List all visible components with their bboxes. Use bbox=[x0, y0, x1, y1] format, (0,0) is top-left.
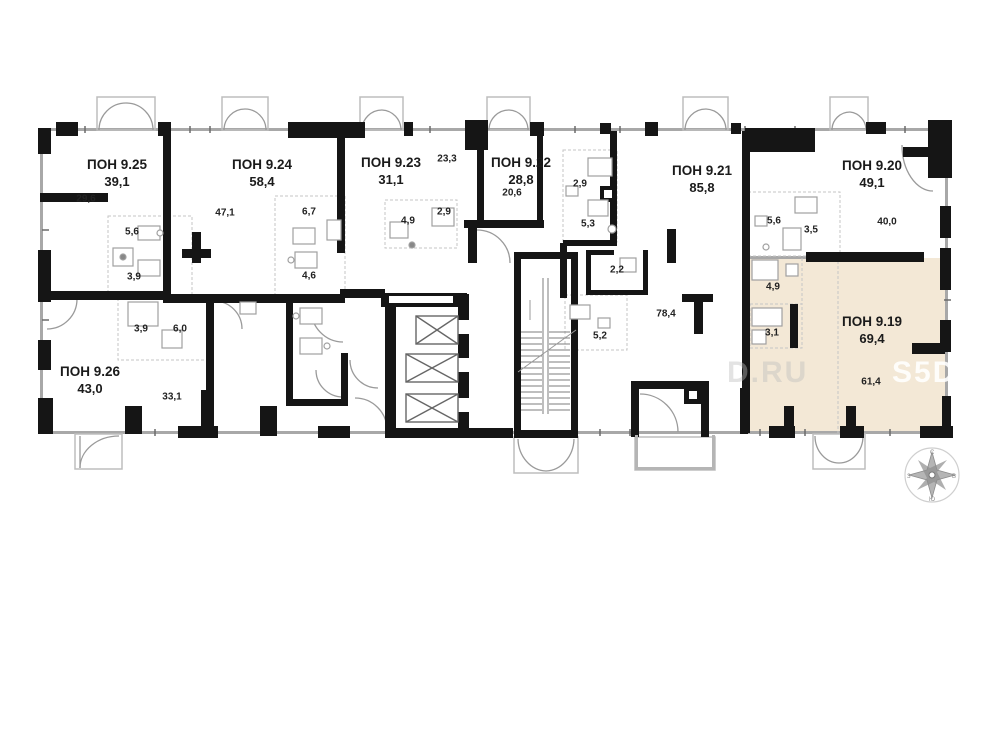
floorplan-drawing: С В Ю З bbox=[0, 0, 1000, 750]
area-label: 5,3 bbox=[581, 219, 595, 230]
area-label: 4,9 bbox=[766, 282, 780, 293]
room-label-9-21[interactable]: ПОН 9.21 85,8 bbox=[672, 162, 732, 196]
area-label: 6,0 bbox=[173, 324, 187, 335]
staircase bbox=[518, 278, 576, 414]
room-label-9-22[interactable]: ПОН 9.22 28,8 bbox=[491, 154, 551, 188]
area-label: 3,5 bbox=[804, 225, 818, 236]
area-label: 33,1 bbox=[162, 392, 181, 403]
area-label: 5,2 bbox=[593, 331, 607, 342]
watermark-fragment-right: S5D bbox=[892, 356, 956, 390]
room-name: ПОН 9.21 bbox=[672, 162, 732, 179]
room-name: ПОН 9.20 bbox=[842, 157, 902, 174]
room-name: ПОН 9.26 bbox=[60, 363, 120, 380]
room-area: 39,1 bbox=[87, 173, 147, 190]
area-label: 47,1 bbox=[215, 208, 234, 219]
area-label: 29,6 bbox=[76, 194, 95, 205]
area-label: 23,3 bbox=[437, 154, 456, 165]
room-label-9-23[interactable]: ПОН 9.23 31,1 bbox=[361, 154, 421, 188]
room-name: ПОН 9.23 bbox=[361, 154, 421, 171]
area-label: 6,7 bbox=[302, 207, 316, 218]
compass-north: С bbox=[930, 450, 935, 456]
compass-east: В bbox=[952, 474, 956, 480]
room-label-9-26[interactable]: ПОН 9.26 43,0 bbox=[60, 363, 120, 397]
area-label: 3,9 bbox=[127, 272, 141, 283]
room-name: ПОН 9.25 bbox=[87, 156, 147, 173]
area-label: 3,1 bbox=[765, 328, 779, 339]
vestibule-porch bbox=[635, 435, 715, 470]
compass-south: Ю bbox=[929, 497, 935, 503]
room-area: 28,8 bbox=[491, 171, 551, 188]
elevator-shafts bbox=[406, 316, 458, 422]
area-label: 3,9 bbox=[134, 324, 148, 335]
area-label: 4,6 bbox=[302, 271, 316, 282]
room-name: ПОН 9.19 bbox=[842, 313, 902, 330]
area-label: 2,9 bbox=[573, 179, 587, 190]
area-label: 2,2 bbox=[610, 265, 624, 276]
area-label: 5,6 bbox=[767, 216, 781, 227]
area-label: 5,6 bbox=[125, 227, 139, 238]
room-name: ПОН 9.24 bbox=[232, 156, 292, 173]
area-label: 2,9 bbox=[437, 207, 451, 218]
room-label-9-20[interactable]: ПОН 9.20 49,1 bbox=[842, 157, 902, 191]
area-label: 4,9 bbox=[401, 216, 415, 227]
area-label: 40,0 bbox=[877, 217, 896, 228]
room-label-9-19[interactable]: ПОН 9.19 69,4 bbox=[842, 313, 902, 347]
compass-west: З bbox=[907, 474, 911, 480]
floorplan-canvas: С В Ю З ПОН 9.25 39,1 ПОН 9.24 58,4 ПОН … bbox=[0, 0, 1000, 750]
room-area: 58,4 bbox=[232, 173, 292, 190]
room-name: ПОН 9.22 bbox=[491, 154, 551, 171]
area-label: 61,4 bbox=[861, 377, 880, 388]
room-area: 69,4 bbox=[842, 330, 902, 347]
room-area: 49,1 bbox=[842, 174, 902, 191]
room-area: 43,0 bbox=[60, 380, 120, 397]
room-label-9-25[interactable]: ПОН 9.25 39,1 bbox=[87, 156, 147, 190]
area-label: 20,6 bbox=[502, 188, 521, 199]
room-area: 85,8 bbox=[672, 179, 732, 196]
compass-icon: С В Ю З bbox=[905, 448, 959, 503]
room-label-9-24[interactable]: ПОН 9.24 58,4 bbox=[232, 156, 292, 190]
area-label: 78,4 bbox=[656, 309, 675, 320]
room-area: 31,1 bbox=[361, 171, 421, 188]
watermark-fragment-left: D.RU bbox=[727, 356, 808, 390]
